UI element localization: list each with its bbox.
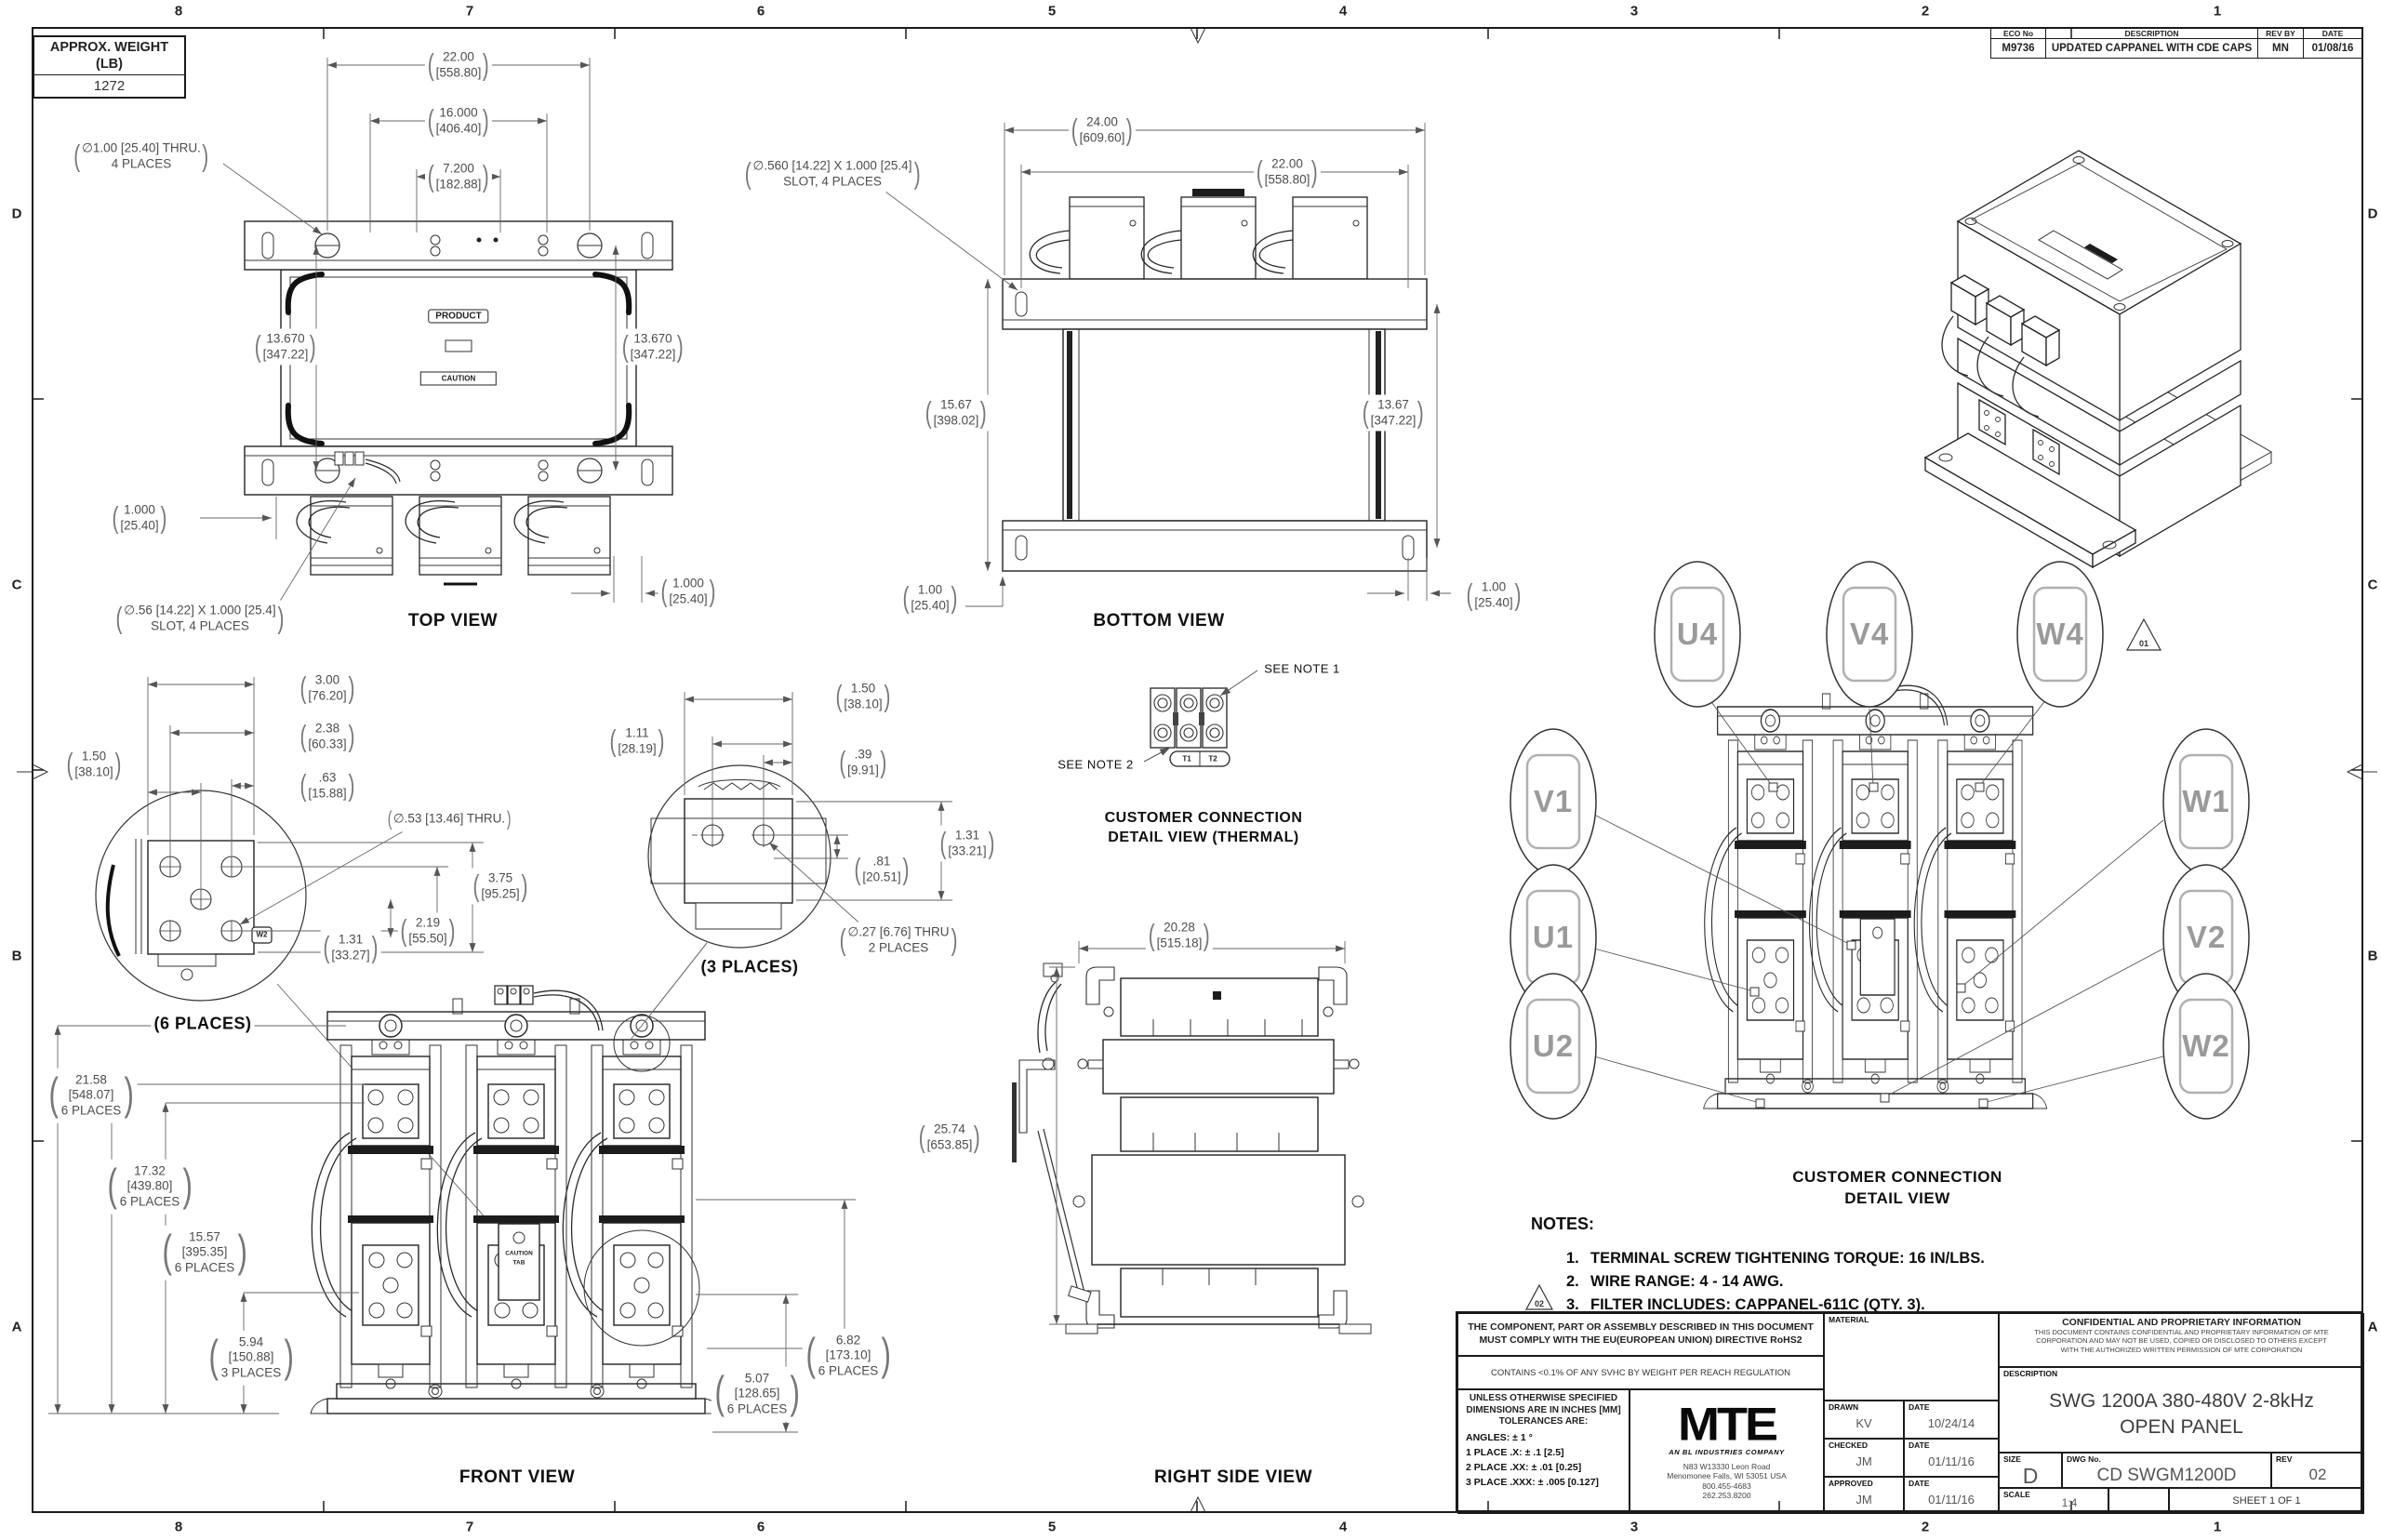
- dim-top-7-2: 7.200[182.88]: [425, 158, 492, 194]
- zone-right-c: C: [2368, 577, 2378, 593]
- dim-top-1000-left: 1.000[25.40]: [110, 499, 170, 536]
- right-side-view-label: RIGHT SIDE VIEW: [1151, 1467, 1315, 1488]
- dim-bottom-1367: 13.67[347.22]: [1360, 394, 1427, 431]
- zone-top-5: 5: [1048, 4, 1056, 20]
- checked-cell: CHECKEDJM: [1824, 1439, 1904, 1477]
- dim-front-1732: 17.32[439.80]6 PLACES: [104, 1160, 196, 1215]
- zone-bottom-7: 7: [466, 1520, 473, 1535]
- zone-right-a: A: [2368, 1320, 2378, 1335]
- dim-d3-39: .39[9.91]: [836, 744, 889, 780]
- front-caution-tag-line1: CAUTION: [505, 1251, 533, 1257]
- zone-bottom-4: 4: [1339, 1520, 1347, 1535]
- dim-front-507: 5.07[128.65]6 PLACES: [712, 1367, 804, 1422]
- dim-d3-150: 1.50[38.10]: [833, 678, 894, 714]
- eco-date: 01/08/16: [2304, 39, 2361, 58]
- drawn-date-cell: DATE10/24/14: [1904, 1401, 1999, 1439]
- weight-value: 1272: [34, 75, 184, 97]
- detail-6-w2-tag: W2: [257, 931, 268, 939]
- eco-header-date: DATE: [2304, 29, 2361, 38]
- note-bottom-slot: ∅.560 [14.22] X 1.000 [25.4]SLOT, 4 PLAC…: [742, 155, 923, 192]
- terminal-w1: W1: [2182, 784, 2230, 819]
- terminal-v4: V4: [1850, 617, 1889, 652]
- zone-bottom-8: 8: [175, 1520, 182, 1535]
- dim-d6-63: .63[15.88]: [298, 767, 358, 803]
- dim-d3-81: .81[20.51]: [852, 851, 912, 887]
- zone-top-1: 1: [2214, 4, 2221, 20]
- mte-logo-block: MTE AN BL INDUSTRIES COMPANY N83 W13330 …: [1629, 1389, 1824, 1514]
- terminal-w4: W4: [2036, 617, 2084, 652]
- note-top-hole: ∅1.00 [25.40] THRU.4 PLACES: [71, 138, 211, 174]
- dim-top-22: 22.00[558.80]: [425, 46, 492, 83]
- checked-date-cell: DATE01/11/16: [1904, 1439, 1999, 1477]
- dim-d6-238: 2.38[60.33]: [298, 718, 358, 754]
- dim-front-682: 6.82[173.10]6 PLACES: [803, 1329, 895, 1384]
- product-placard: PRODUCT: [428, 310, 488, 324]
- zone-bottom-5: 5: [1048, 1520, 1056, 1535]
- thermal-t1: T1: [1182, 755, 1190, 763]
- detail-3-places-label: (3 PLACES): [698, 958, 801, 977]
- zone-bottom-3: 3: [1630, 1520, 1638, 1535]
- rev-flag-01: 01: [2139, 639, 2148, 648]
- right-side-view-drawing: [1012, 941, 1371, 1334]
- zone-left-d: D: [12, 206, 22, 222]
- zone-right-b: B: [2368, 949, 2378, 964]
- dim-front-2158: 21.58[548.07]6 PLACES: [46, 1069, 138, 1123]
- zone-left-a: A: [12, 1320, 22, 1335]
- zone-bottom-2: 2: [1922, 1520, 1929, 1535]
- eco-no: M9736: [1991, 39, 2046, 58]
- dim-bottom-1-right: 1.00[25.40]: [1464, 577, 1524, 613]
- thermal-title-line2: DETAIL VIEW (THERMAL): [1105, 830, 1301, 846]
- eco-revision-table: ECO No DESCRIPTION REV BY DATE M9736 UPD…: [1990, 28, 2362, 59]
- note-top-slot: ∅.56 [14.22] X 1.000 [25.4]SLOT, 4 PLACE…: [113, 600, 287, 636]
- eco-header-description: DESCRIPTION: [2046, 29, 2258, 38]
- terminal-v1: V1: [1534, 784, 1573, 819]
- scale-cell: SCALE1:4: [1999, 1488, 2108, 1514]
- title-block: THE COMPONENT, PART OR ASSEMBLY DESCRIBE…: [1456, 1311, 2362, 1512]
- bottom-view-label: BOTTOM VIEW: [1090, 611, 1227, 631]
- zone-left-b: B: [12, 949, 22, 964]
- bottom-view-drawing: [885, 123, 1451, 606]
- dim-d6-375: 3.75[95.25]: [471, 868, 531, 904]
- size-cell: SIZED: [1999, 1453, 2062, 1488]
- zone-top-8: 8: [175, 4, 182, 20]
- dwg-no-cell: DWG No.CD SWGM1200D: [2062, 1453, 2271, 1488]
- note-d6-hole: ∅.53 [13.46] THRU.: [386, 807, 513, 832]
- thermal-t2: T2: [1208, 755, 1217, 763]
- zone-top-3: 3: [1630, 4, 1638, 20]
- see-note-2: SEE NOTE 2: [1055, 758, 1137, 772]
- eco-header-revby: REV BY: [2258, 29, 2304, 38]
- connection-title-line2: DETAIL VIEW: [1842, 1189, 1953, 1208]
- mte-logo: MTE: [1678, 1404, 1776, 1446]
- weight-title-line2: (LB): [34, 56, 184, 73]
- material-cell: MATERIAL: [1824, 1313, 1999, 1401]
- approved-date-cell: DATE01/11/16: [1904, 1477, 1999, 1514]
- dim-right-2574: 25.74[653.85]: [916, 1119, 983, 1155]
- dim-bottom-24: 24.00[609.60]: [1069, 112, 1136, 148]
- rev-flag-02: 02: [1535, 1299, 1544, 1308]
- dim-bottom-22: 22.00[558.80]: [1254, 153, 1321, 190]
- dim-front-594: 5.94[150.88]3 PLACES: [206, 1331, 298, 1386]
- dim-d6-300: 3.00[76.20]: [298, 670, 358, 706]
- terminal-w2: W2: [2182, 1029, 2230, 1064]
- dim-top-16: 16.000[406.40]: [425, 102, 492, 139]
- isometric-view-drawing: [1925, 151, 2271, 567]
- reach-compliance: CONTAINS <0.1% OF ANY SVHC BY WEIGHT PER…: [1457, 1356, 1824, 1389]
- dim-top-1000-right: 1.000[25.40]: [658, 573, 719, 609]
- dim-bottom-1-left: 1.00[25.40]: [900, 579, 961, 616]
- weight-title-line1: APPROX. WEIGHT: [34, 39, 184, 56]
- scale-spacer-cell: [2108, 1488, 2169, 1514]
- zone-top-2: 2: [1922, 4, 1929, 20]
- dim-top-13670-right: 13.670[347.22]: [619, 328, 686, 365]
- thermal-detail-drawing: [1144, 670, 1257, 766]
- thermal-title-line1: CUSTOMER CONNECTION: [1102, 810, 1306, 827]
- description-cell: DESCRIPTION SWG 1200A 380-480V 2-8kHz OP…: [1999, 1367, 2364, 1453]
- dim-bottom-1567: 15.67[398.02]: [923, 394, 990, 431]
- top-view-label: TOP VIEW: [406, 611, 500, 631]
- terminal-v2: V2: [2187, 920, 2226, 955]
- dim-right-2028: 20.28[515.18]: [1146, 917, 1213, 953]
- dim-d3-131: 1.31[33.21]: [938, 825, 998, 861]
- zone-top-7: 7: [466, 4, 473, 20]
- eco-description: UPDATED CAPPANEL WITH CDE CAPS: [2046, 39, 2258, 58]
- rohs-compliance: THE COMPONENT, PART OR ASSEMBLY DESCRIBE…: [1457, 1313, 1824, 1356]
- zone-right-d: D: [2368, 206, 2378, 222]
- dim-front-1557: 15.57[395.35]6 PLACES: [159, 1226, 251, 1281]
- tolerance-block: UNLESS OTHERWISE SPECIFIEDDIMENSIONS ARE…: [1457, 1389, 1629, 1514]
- sheet-cell: SHEET 1 OF 1: [2169, 1488, 2364, 1514]
- see-note-1: SEE NOTE 1: [1261, 662, 1343, 676]
- zone-top-4: 4: [1339, 4, 1347, 20]
- connection-title-line1: CUSTOMER CONNECTION: [1789, 1168, 2004, 1187]
- approx-weight-box: APPROX. WEIGHT (LB) 1272: [33, 35, 186, 99]
- terminal-u2: U2: [1533, 1029, 1574, 1064]
- description-line2: OPEN PANEL: [2000, 1414, 2363, 1440]
- terminal-u4: U4: [1677, 617, 1718, 652]
- note-item-2: 2.WIRE RANGE: 4 - 14 AWG.: [1566, 1273, 1784, 1291]
- detail-6-places-label: (6 PLACES): [151, 1015, 254, 1034]
- approved-cell: APPROVEDJM: [1824, 1477, 1904, 1514]
- front-view-label: FRONT VIEW: [457, 1467, 578, 1488]
- notes-title: NOTES:: [1531, 1215, 1594, 1234]
- mte-address: N83 W13330 Leon RoadMenomonee Falls, WI …: [1667, 1462, 1787, 1502]
- drawn-cell: DRAWNKV: [1824, 1401, 1904, 1439]
- note-item-1: 1.TERMINAL SCREW TIGHTENING TORQUE: 16 I…: [1566, 1250, 1985, 1268]
- front-caution-tag-line2: TAB: [513, 1260, 525, 1267]
- confidential-block: CONFIDENTIAL AND PROPRIETARY INFORMATION…: [1999, 1313, 2364, 1367]
- dim-d3-111: 1.11[28.19]: [607, 723, 668, 759]
- zone-left-c: C: [12, 577, 22, 593]
- dim-d6-131: 1.31[33.27]: [321, 929, 381, 965]
- caution-placard: CAUTION: [420, 372, 497, 386]
- engineering-drawing-sheet: 8 7 6 5 4 3 2 1 8 7 6 5 4 3 2 1 D C B A …: [0, 0, 2381, 1540]
- zone-bottom-1: 1: [2214, 1520, 2221, 1535]
- eco-header-no: ECO No: [1991, 29, 2046, 38]
- dim-d6-150: 1.50[38.10]: [64, 746, 125, 782]
- rev-cell: REV02: [2271, 1453, 2364, 1488]
- dim-top-13670-left: 13.670[347.22]: [252, 328, 319, 365]
- zone-top-6: 6: [757, 4, 765, 20]
- terminal-u1: U1: [1533, 920, 1574, 955]
- description-line1: SWG 1200A 380-480V 2-8kHz: [2000, 1388, 2363, 1414]
- eco-revby: MN: [2258, 39, 2304, 58]
- dim-d6-219: 2.19[55.50]: [398, 912, 459, 949]
- note-d3-hole: ∅.27 [6.76] THRU2 PLACES: [837, 922, 960, 958]
- zone-bottom-6: 6: [757, 1520, 765, 1535]
